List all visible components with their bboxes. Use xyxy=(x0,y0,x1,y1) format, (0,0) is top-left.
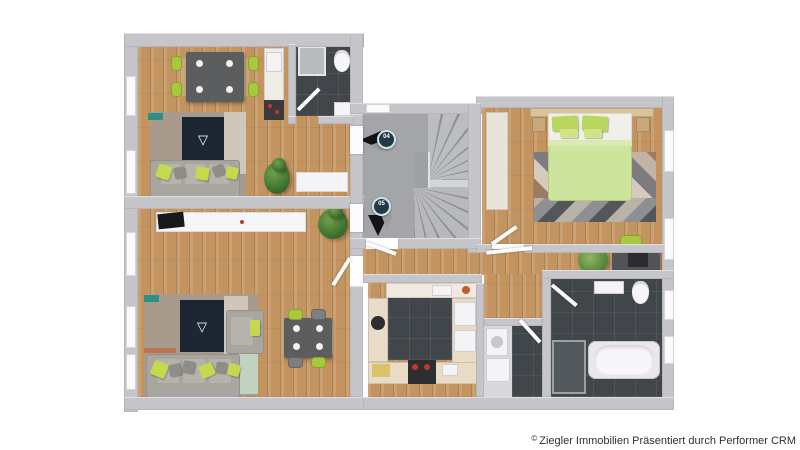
dining-chair xyxy=(248,56,259,71)
tv-media-unit: ▽ xyxy=(182,117,224,161)
pillow-green xyxy=(225,166,239,180)
tv-logo-icon: ▽ xyxy=(197,320,207,333)
door-unit-04 xyxy=(350,126,363,154)
dining-table-2 xyxy=(284,318,332,358)
stair-lower-flight xyxy=(414,187,468,238)
kitchenette-stove xyxy=(264,100,284,120)
wall-kitchen-laundry xyxy=(476,283,484,397)
door-unit-05 xyxy=(350,204,363,232)
fridge xyxy=(454,302,476,326)
shower-main xyxy=(552,340,586,394)
pillow-green xyxy=(250,320,260,336)
wall-kitchen-top xyxy=(363,274,482,283)
wall-bottom-left-wing xyxy=(124,397,364,410)
plate xyxy=(316,343,323,350)
toilet xyxy=(334,50,350,72)
unit-05-label: 05 xyxy=(378,201,385,207)
plate xyxy=(196,60,203,67)
pillow-green xyxy=(195,166,210,181)
wall-top-left-outer xyxy=(124,33,364,47)
window xyxy=(126,150,136,194)
wall-stair-bottom-b xyxy=(398,238,481,249)
floorplan-image: ▽ ▽ 04 05 xyxy=(0,0,800,450)
window xyxy=(664,290,674,320)
plate xyxy=(226,86,233,93)
stove-burner xyxy=(424,364,430,370)
dining-chair xyxy=(171,56,182,71)
kitchen-cabinet xyxy=(454,330,476,352)
kitchenette-sink xyxy=(266,52,282,72)
teal-accent xyxy=(148,113,163,120)
plate xyxy=(293,343,300,350)
watermark-text: Ziegler Immobilien Präsentiert durch Per… xyxy=(539,435,796,447)
tv-logo-icon: ▽ xyxy=(198,133,208,146)
wall-mid-divider xyxy=(124,196,364,209)
toilet-main xyxy=(632,281,649,304)
dining-chair xyxy=(288,309,303,320)
unit-04-badge: 04 xyxy=(377,130,396,149)
wall-bath-top xyxy=(542,270,674,279)
nightstand-right xyxy=(636,117,650,132)
wall-bathA-left xyxy=(288,44,296,124)
kitchen-appliance xyxy=(442,364,458,376)
nightstand-left xyxy=(532,117,546,132)
plate xyxy=(226,60,233,67)
wall-laundry-top xyxy=(484,318,542,326)
wall-bedroom-hall-b xyxy=(524,244,674,253)
bed-pillow-small xyxy=(584,129,602,138)
wall-bottom-right-wing xyxy=(350,397,674,410)
wall-bathA-bottom-a xyxy=(288,116,296,124)
window xyxy=(126,354,136,390)
pillow-gray xyxy=(182,360,196,374)
dining-chair xyxy=(248,82,259,97)
stove-burner xyxy=(412,364,418,370)
teal-accent xyxy=(144,295,159,302)
stair-landing xyxy=(428,180,468,187)
kitchen-basin-round xyxy=(371,316,385,330)
dining-chair xyxy=(288,357,303,368)
copyright-icon: © xyxy=(531,434,537,443)
potted-plant-leaf xyxy=(272,158,286,172)
dining-table xyxy=(186,52,244,102)
window xyxy=(664,130,674,172)
unit-04-label: 04 xyxy=(383,134,390,140)
wall-stair-right xyxy=(468,103,481,253)
rug-coral-strip xyxy=(144,348,176,353)
window xyxy=(126,232,136,276)
stove-knob xyxy=(268,104,272,108)
washer-door xyxy=(491,336,503,348)
bathtub-basin xyxy=(594,345,654,375)
unit-05-arrow-shadow xyxy=(381,215,393,229)
stair-upper-flight xyxy=(428,114,468,180)
plate xyxy=(196,86,203,93)
bed-duvet xyxy=(548,140,632,201)
dining-chair xyxy=(311,309,326,320)
plate xyxy=(316,325,323,332)
window xyxy=(126,306,136,348)
kitchen-counter-left xyxy=(368,298,388,362)
plate xyxy=(293,325,300,332)
stair-newel xyxy=(414,152,430,188)
kitchen-sink xyxy=(432,285,452,296)
window xyxy=(664,218,674,260)
wall-leftwing-right-lower xyxy=(350,286,363,397)
stove xyxy=(408,360,436,384)
window xyxy=(664,336,674,364)
wall-stair-bottom-a xyxy=(350,238,366,249)
wall-laundry-bath xyxy=(542,278,551,397)
washbasin xyxy=(594,281,624,294)
bed-pillow-small xyxy=(560,129,578,138)
shower-tray xyxy=(298,46,326,76)
laundry-cabinet xyxy=(486,358,510,382)
dining-chair xyxy=(171,82,182,97)
window-stairwell xyxy=(366,104,390,113)
kitchen-tiles xyxy=(388,298,452,360)
wardrobe xyxy=(486,112,508,210)
pillow-gray xyxy=(173,166,186,179)
watermark: ©Ziegler Immobilien Präsentiert durch Pe… xyxy=(531,434,796,447)
stove-knob xyxy=(275,110,279,114)
unit-05-badge: 05 xyxy=(372,197,391,216)
decor-red-dot xyxy=(240,220,244,224)
tv-media-unit: ▽ xyxy=(180,300,224,352)
pillow-gray xyxy=(215,361,227,373)
wall-bathA-bottom-b xyxy=(318,116,354,124)
laptop xyxy=(628,252,648,267)
cutting-board xyxy=(372,364,390,377)
floor-hallway-branch xyxy=(484,274,542,318)
window xyxy=(126,76,136,116)
tv-flat xyxy=(157,212,184,230)
dining-chair xyxy=(311,357,326,368)
bedroom-rug-zigzag xyxy=(534,198,656,222)
hall-bench xyxy=(296,172,348,192)
wall-bedroom-top xyxy=(476,96,674,108)
cooking-pot xyxy=(462,286,470,294)
